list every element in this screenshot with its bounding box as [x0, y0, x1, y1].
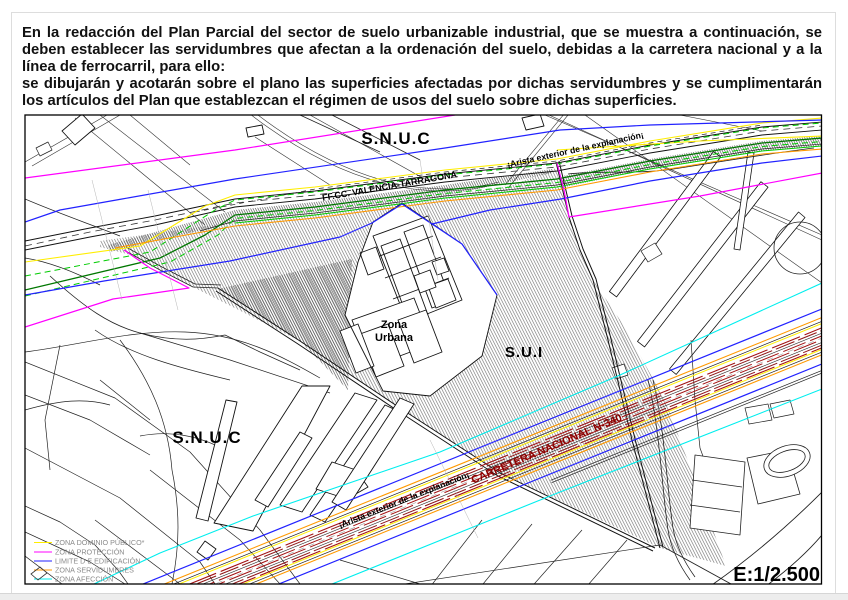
svg-text:ZONA SERVIDUMBRES: ZONA SERVIDUMBRES: [55, 566, 134, 575]
svg-text:S.N.U.C: S.N.U.C: [172, 428, 241, 447]
svg-text:S.U.I: S.U.I: [505, 344, 543, 361]
svg-text:Urbana: Urbana: [375, 332, 414, 344]
svg-text:ZONA AFECCIÓN: ZONA AFECCIÓN: [55, 575, 113, 584]
svg-text:Zona: Zona: [381, 319, 408, 331]
svg-text:LIMITE D E EDIFICACIÓN: LIMITE D E EDIFICACIÓN: [55, 557, 140, 566]
svg-text:ZONA DOMINIO PÚBLICO*: ZONA DOMINIO PÚBLICO*: [55, 538, 145, 547]
svg-text:ZONA PROTECCIÓN: ZONA PROTECCIÓN: [55, 548, 124, 557]
svg-text:E:1/2.500: E:1/2.500: [733, 564, 820, 586]
svg-text:S.N.U.C: S.N.U.C: [361, 129, 430, 148]
